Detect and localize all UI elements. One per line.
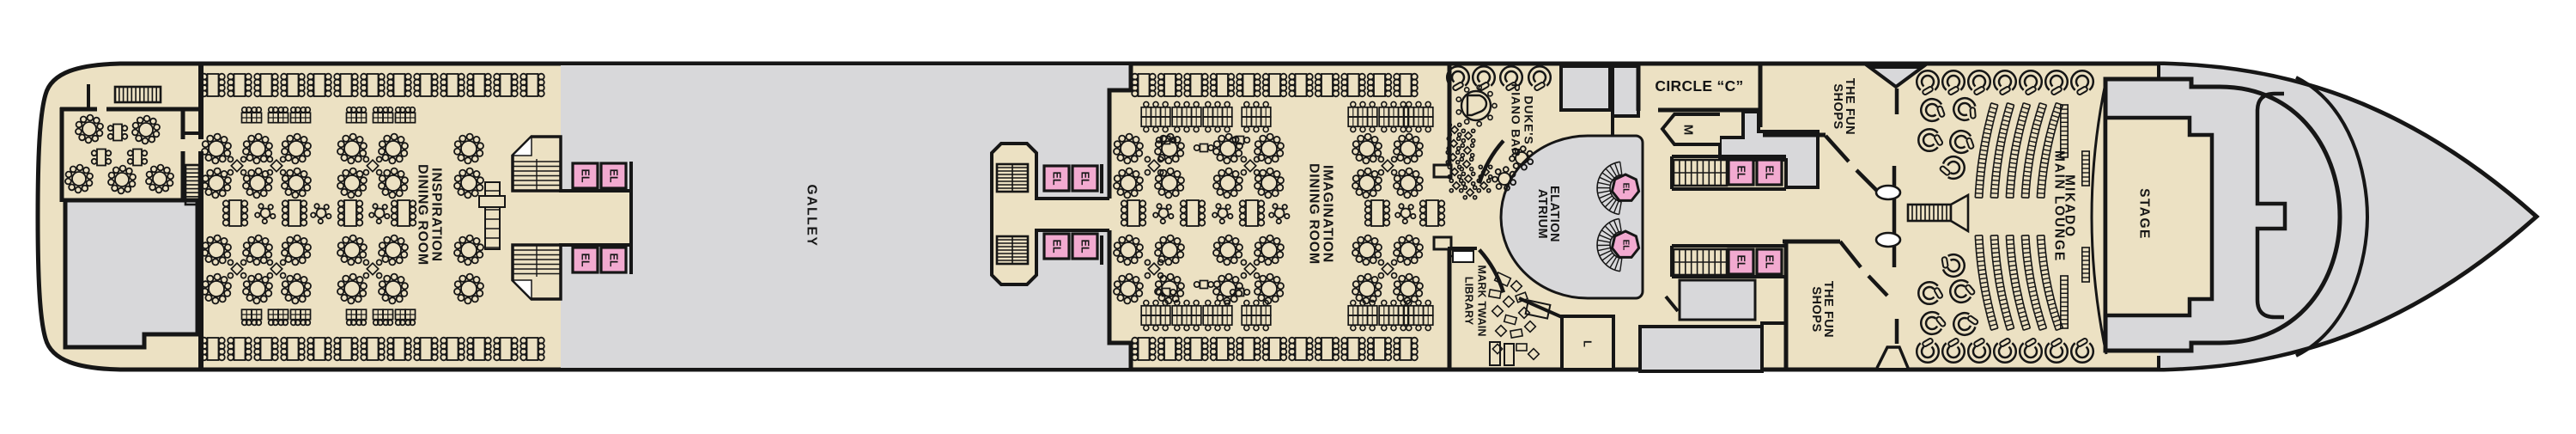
svg-text:EL: EL	[1051, 240, 1063, 254]
svg-text:GALLEY: GALLEY	[805, 184, 819, 247]
svg-text:EL: EL	[608, 169, 620, 183]
svg-text:MARK TWAIN: MARK TWAIN	[1476, 265, 1488, 336]
svg-text:PIANO BAR: PIANO BAR	[1510, 83, 1523, 157]
svg-text:EL: EL	[1621, 183, 1631, 194]
svg-text:EL: EL	[1735, 255, 1747, 269]
svg-text:EL: EL	[580, 254, 592, 267]
svg-text:EL: EL	[1735, 166, 1747, 180]
svg-text:M: M	[1681, 125, 1696, 136]
svg-text:L: L	[1582, 340, 1595, 347]
svg-text:LIBRARY: LIBRARY	[1463, 277, 1475, 326]
svg-text:EL: EL	[580, 169, 592, 183]
svg-text:INSPIRATION: INSPIRATION	[429, 168, 444, 262]
svg-text:EL: EL	[1621, 240, 1631, 251]
svg-text:SHOPS: SHOPS	[1831, 83, 1844, 129]
svg-text:EL: EL	[1764, 166, 1776, 180]
svg-text:CIRCLE “C”: CIRCLE “C”	[1655, 77, 1743, 95]
svg-text:MAIN LOUNGE: MAIN LOUNGE	[2051, 150, 2066, 262]
svg-text:EL: EL	[1051, 172, 1063, 186]
svg-text:IMAGINATION: IMAGINATION	[1321, 165, 1335, 263]
svg-text:EL: EL	[1079, 240, 1091, 254]
svg-text:DUKE'S: DUKE'S	[1522, 95, 1536, 144]
svg-text:DINING ROOM: DINING ROOM	[1307, 163, 1321, 265]
svg-text:EL: EL	[608, 254, 620, 267]
svg-text:EL: EL	[1079, 172, 1091, 186]
svg-text:STAGE: STAGE	[2137, 188, 2152, 240]
svg-text:SHOPS: SHOPS	[1809, 286, 1823, 332]
svg-text:ATRIUM: ATRIUM	[1535, 189, 1549, 239]
svg-text:EL: EL	[1764, 255, 1776, 269]
svg-text:DINING ROOM: DINING ROOM	[416, 164, 430, 266]
